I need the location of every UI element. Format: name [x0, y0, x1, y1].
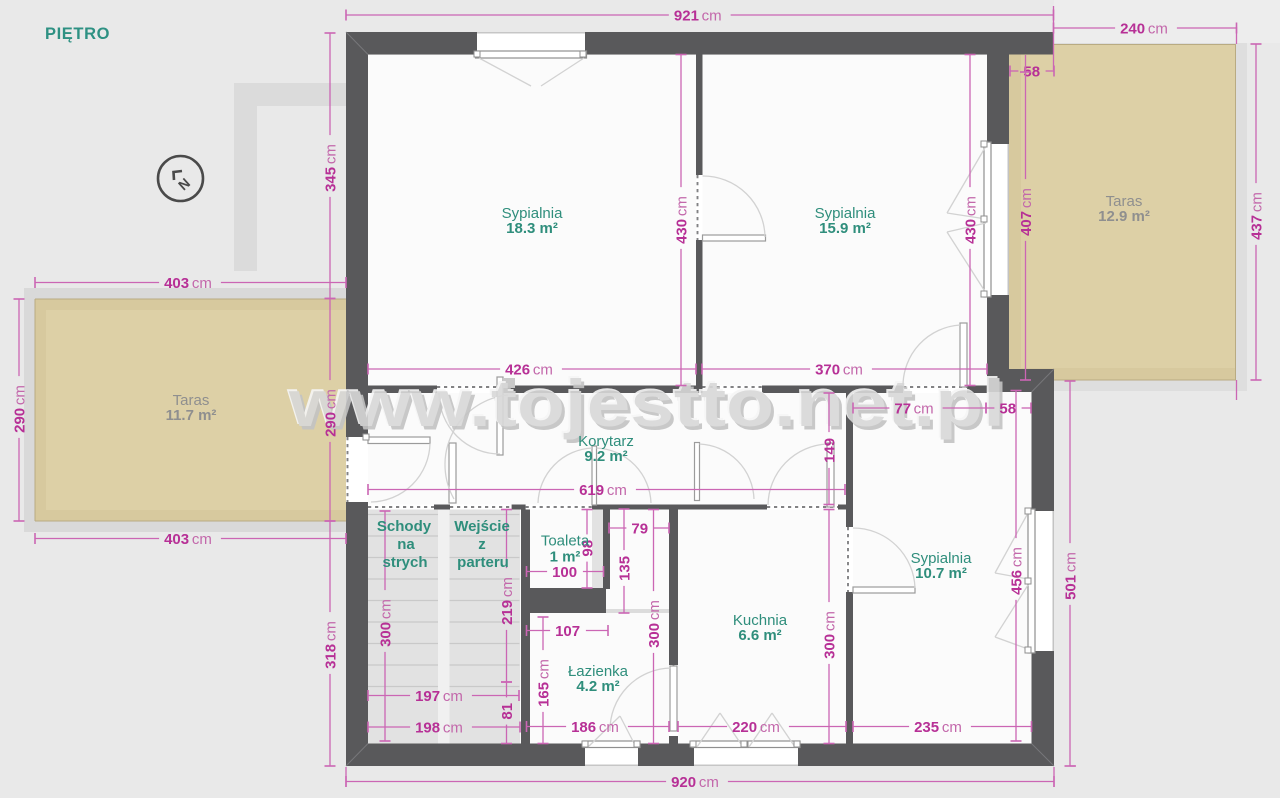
svg-text:100: 100 [552, 564, 577, 581]
svg-text:403: 403 [164, 531, 189, 548]
svg-text:921: 921 [674, 7, 699, 24]
svg-text:81: 81 [499, 703, 516, 720]
svg-text:cm: cm [699, 774, 719, 791]
svg-text:300: 300 [646, 623, 663, 648]
svg-text:79: 79 [631, 520, 648, 537]
svg-text:cm: cm [1248, 192, 1265, 212]
svg-text:345: 345 [322, 167, 339, 192]
svg-text:cm: cm [1062, 552, 1079, 572]
svg-text:cm: cm [192, 531, 212, 548]
svg-text:6.6 m²: 6.6 m² [738, 627, 781, 644]
svg-text:strych: strych [382, 554, 427, 571]
svg-text:cm: cm [599, 719, 619, 736]
svg-text:430: 430 [673, 219, 690, 244]
svg-text:parteru: parteru [457, 554, 509, 571]
svg-text:58: 58 [999, 400, 1016, 417]
svg-text:cm: cm [760, 719, 780, 736]
svg-text:77: 77 [894, 400, 911, 417]
svg-text:cm: cm [322, 621, 339, 641]
svg-text:cm: cm [673, 196, 690, 216]
svg-text:197: 197 [415, 688, 440, 705]
svg-text:Toaleta: Toaleta [541, 533, 590, 550]
svg-text:149: 149 [821, 438, 838, 463]
svg-text:456: 456 [1008, 570, 1025, 595]
svg-text:300: 300 [821, 634, 838, 659]
svg-text:290: 290 [322, 412, 339, 437]
svg-text:1 m²: 1 m² [550, 549, 581, 566]
svg-text:501: 501 [1062, 575, 1079, 600]
svg-text:198: 198 [415, 719, 440, 736]
svg-text:cm: cm [322, 144, 339, 164]
svg-text:PIĘTRO: PIĘTRO [45, 25, 110, 43]
svg-text:920: 920 [671, 774, 696, 791]
svg-text:cm: cm [1148, 20, 1168, 37]
svg-text:219: 219 [499, 600, 516, 625]
svg-text:430: 430 [962, 219, 979, 244]
svg-text:cm: cm [843, 361, 863, 378]
svg-text:235: 235 [914, 719, 939, 736]
svg-text:Wejście: Wejście [454, 518, 510, 535]
svg-text:619: 619 [579, 482, 604, 499]
svg-text:10.7 m²: 10.7 m² [915, 565, 967, 582]
svg-text:cm: cm [1018, 188, 1035, 208]
svg-text:cm: cm [942, 719, 962, 736]
svg-text:165: 165 [535, 682, 552, 707]
svg-text:cm: cm [533, 361, 553, 378]
svg-text:cm: cm [535, 659, 552, 679]
svg-text:426: 426 [505, 361, 530, 378]
svg-text:290: 290 [11, 408, 28, 433]
svg-text:220: 220 [732, 719, 757, 736]
svg-text:cm: cm [192, 275, 212, 292]
svg-text:cm: cm [646, 600, 663, 620]
svg-text:cm: cm [962, 196, 979, 216]
svg-text:240: 240 [1120, 20, 1145, 37]
svg-text:9.2 m²: 9.2 m² [584, 448, 627, 465]
svg-text:cm: cm [11, 385, 28, 405]
svg-text:cm: cm [821, 611, 838, 631]
svg-text:cm: cm [914, 400, 934, 417]
svg-text:11.7 m²: 11.7 m² [166, 407, 217, 424]
svg-text:cm: cm [607, 482, 627, 499]
svg-text:437: 437 [1248, 215, 1265, 240]
svg-text:cm: cm [443, 719, 463, 736]
svg-text:cm: cm [702, 7, 722, 24]
svg-text:Schody: Schody [377, 518, 432, 535]
svg-text:403: 403 [164, 275, 189, 292]
svg-text:cm: cm [377, 599, 394, 619]
svg-text:370: 370 [815, 361, 840, 378]
svg-text:cm: cm [443, 688, 463, 705]
svg-text:300: 300 [377, 622, 394, 647]
svg-text:cm: cm [499, 577, 516, 597]
svg-text:cm: cm [1008, 547, 1025, 567]
svg-text:186: 186 [571, 719, 596, 736]
svg-text:12.9 m²: 12.9 m² [1098, 208, 1150, 225]
svg-text:cm: cm [322, 389, 339, 409]
svg-text:18.3 m²: 18.3 m² [506, 220, 558, 237]
svg-text:4.2 m²: 4.2 m² [576, 678, 619, 695]
svg-text:407: 407 [1018, 211, 1035, 236]
svg-text:318: 318 [322, 644, 339, 669]
svg-text:na: na [397, 536, 415, 553]
svg-text:107: 107 [555, 623, 580, 640]
svg-text:15.9 m²: 15.9 m² [819, 220, 871, 237]
svg-text:z: z [478, 536, 486, 553]
svg-text:135: 135 [616, 556, 633, 581]
